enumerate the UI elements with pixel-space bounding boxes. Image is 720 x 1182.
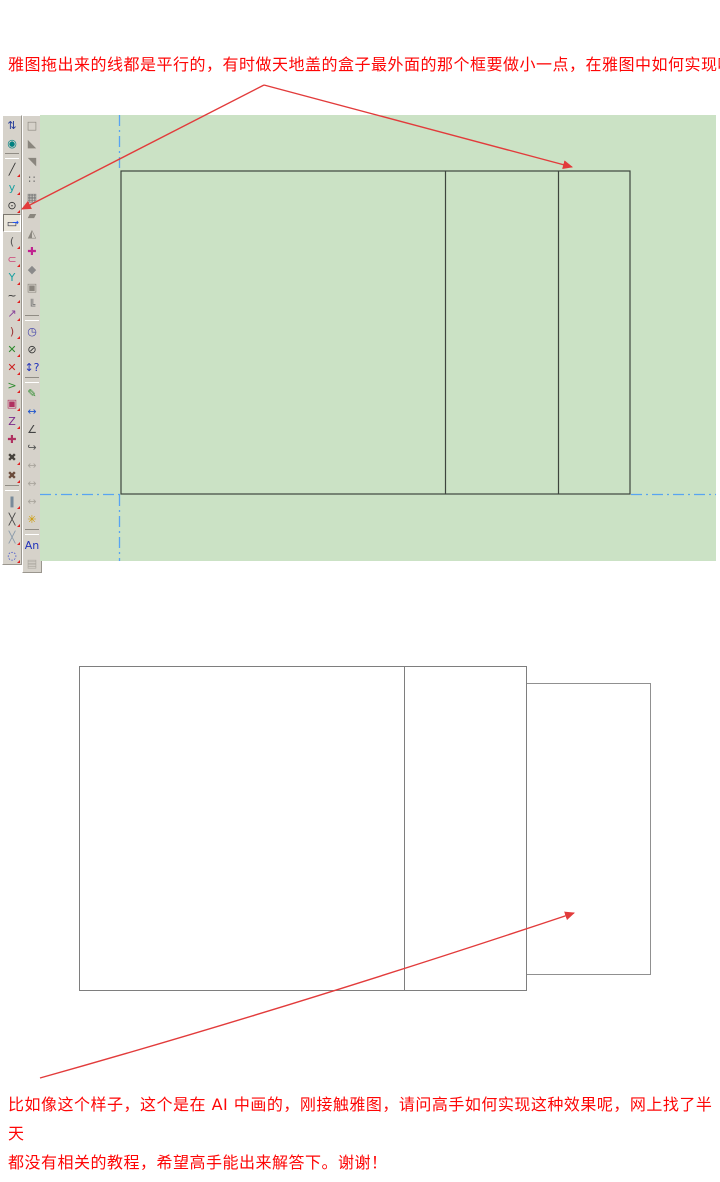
search-red-tool-icon[interactable]: ✖: [3, 466, 21, 484]
half-shape-b-icon[interactable]: ◥: [23, 152, 41, 170]
stairs-icon[interactable]: ╚: [23, 296, 41, 314]
dimension-3-icon[interactable]: ↔: [23, 492, 41, 510]
toolbar-separator: [25, 315, 39, 321]
star-dimension-icon[interactable]: ✳: [23, 510, 41, 528]
delete-tool-icon[interactable]: ✕: [3, 358, 21, 376]
hatch2-tool-icon[interactable]: ╳: [3, 528, 21, 546]
select-handles-icon[interactable]: ▣: [23, 278, 41, 296]
solid-shape-icon[interactable]: ▰: [23, 206, 41, 224]
toolbar-separator: [5, 153, 19, 159]
ai-offset-small-rectangle: [525, 683, 651, 975]
points-grid-icon[interactable]: ∷: [23, 170, 41, 188]
nest-rectangle-tool-icon[interactable]: ▣: [3, 394, 21, 412]
dimension-1-icon[interactable]: ↔: [23, 456, 41, 474]
blocks-icon[interactable]: ▦: [23, 188, 41, 206]
question-text-bottom-line2: 都没有相关的教程，希望高手能出来解答下。谢谢！: [8, 1153, 388, 1172]
toolbar-separator: [25, 377, 39, 383]
pan-tool-icon[interactable]: ⇅: [3, 116, 21, 134]
curve-arrow-icon[interactable]: ↪: [23, 438, 41, 456]
triangle-curve-icon[interactable]: ◭: [23, 224, 41, 242]
updown-question-icon[interactable]: ↕?: [23, 358, 41, 376]
color-cross-icon[interactable]: ✚: [23, 242, 41, 260]
cut-tool-icon[interactable]: ✕: [3, 340, 21, 358]
clock-icon[interactable]: ◷: [23, 322, 41, 340]
line-tool-icon[interactable]: ╱: [3, 160, 21, 178]
perpendicular-tool-icon[interactable]: Y: [3, 268, 21, 286]
question-text-bottom: 比如像这个样子，这个是在 AI 中画的，刚接触雅图，请问高手如何实现这种效果呢，…: [8, 1090, 714, 1177]
arc-tool-icon[interactable]: (: [3, 232, 21, 250]
rotate-circle-tool-icon[interactable]: ◌: [3, 546, 21, 564]
cad-screenshot: ⇅◉╱y⊙▭→(⊂Y~↗)✕✕>▣Z✚✖✖∥╳╳◌ □◣◥∷▦▰◭✚◆▣╚◷⊘↕…: [2, 115, 716, 561]
half-shape-a-icon[interactable]: ◣: [23, 134, 41, 152]
hatch-tool-icon[interactable]: ∥: [3, 492, 21, 510]
ai-rectangle-divider-line: [404, 667, 405, 990]
rectangle-tool-icon-accent: →: [12, 219, 19, 227]
text-tool-icon[interactable]: An: [23, 536, 41, 554]
eye-tool-icon[interactable]: ◉: [3, 134, 21, 152]
search-dark-tool-icon[interactable]: ✖: [3, 448, 21, 466]
polygon-icon[interactable]: ◆: [23, 260, 41, 278]
pencil-measure-icon[interactable]: ✎: [23, 384, 41, 402]
cad-toolbar-left-column: ⇅◉╱y⊙▭→(⊂Y~↗)✕✕>▣Z✚✖✖∥╳╳◌: [2, 115, 22, 565]
marquee-icon[interactable]: □: [23, 116, 41, 134]
curve-tool-icon[interactable]: y: [3, 178, 21, 196]
angle-dimension-icon[interactable]: ∠: [23, 420, 41, 438]
no-entry-icon[interactable]: ⊘: [23, 340, 41, 358]
chevron-tool-icon[interactable]: >: [3, 376, 21, 394]
ellipse-arc-tool-icon[interactable]: ⊂: [3, 250, 21, 268]
horizontal-dimension-icon[interactable]: ↔: [23, 402, 41, 420]
rectangle-tool-icon[interactable]: ▭→: [3, 214, 21, 232]
last-grayed-icon[interactable]: ▤: [23, 554, 41, 572]
question-text-top: 雅图拖出来的线都是平行的，有时做天地盖的盒子最外面的那个框要做小一点，在雅图中如…: [8, 55, 720, 75]
ai-large-rectangle: [79, 666, 527, 991]
zigzag-tool-icon[interactable]: Z: [3, 412, 21, 430]
question-text-bottom-line1: 比如像这个样子，这个是在 AI 中画的，刚接触雅图，请问高手如何实现这种效果呢，…: [8, 1095, 712, 1143]
curve2-tool-icon[interactable]: ): [3, 322, 21, 340]
cad-toolbar-right-column: □◣◥∷▦▰◭✚◆▣╚◷⊘↕?✎↔∠↪↔↔↔✳An▤: [22, 115, 42, 573]
circle-tool-icon[interactable]: ⊙: [3, 196, 21, 214]
cross-points-tool-icon[interactable]: ╳: [3, 510, 21, 528]
align-cross-tool-icon[interactable]: ✚: [3, 430, 21, 448]
toolbar-separator: [25, 529, 39, 535]
forum-question-image: { "question": { "top_line": "雅图拖出来的线都是平行…: [0, 0, 720, 1182]
dimension-2-icon[interactable]: ↔: [23, 474, 41, 492]
wave-tool-icon[interactable]: ~: [3, 286, 21, 304]
toolbar-separator: [5, 485, 19, 491]
point-arrow-tool-icon[interactable]: ↗: [3, 304, 21, 322]
cad-canvas: [40, 115, 716, 561]
